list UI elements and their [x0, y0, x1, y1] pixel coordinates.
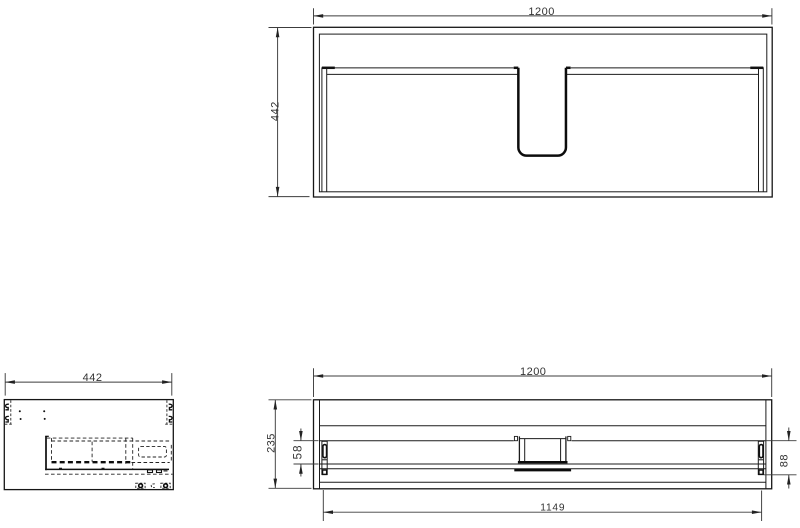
- svg-text:442: 442: [83, 372, 103, 384]
- svg-text:1200: 1200: [528, 6, 554, 18]
- svg-text:235: 235: [265, 433, 277, 453]
- svg-text:88: 88: [779, 454, 791, 467]
- svg-text:58: 58: [290, 445, 304, 460]
- svg-text:1149: 1149: [540, 503, 565, 514]
- svg-text:1200: 1200: [520, 366, 546, 378]
- svg-text:442: 442: [269, 101, 281, 121]
